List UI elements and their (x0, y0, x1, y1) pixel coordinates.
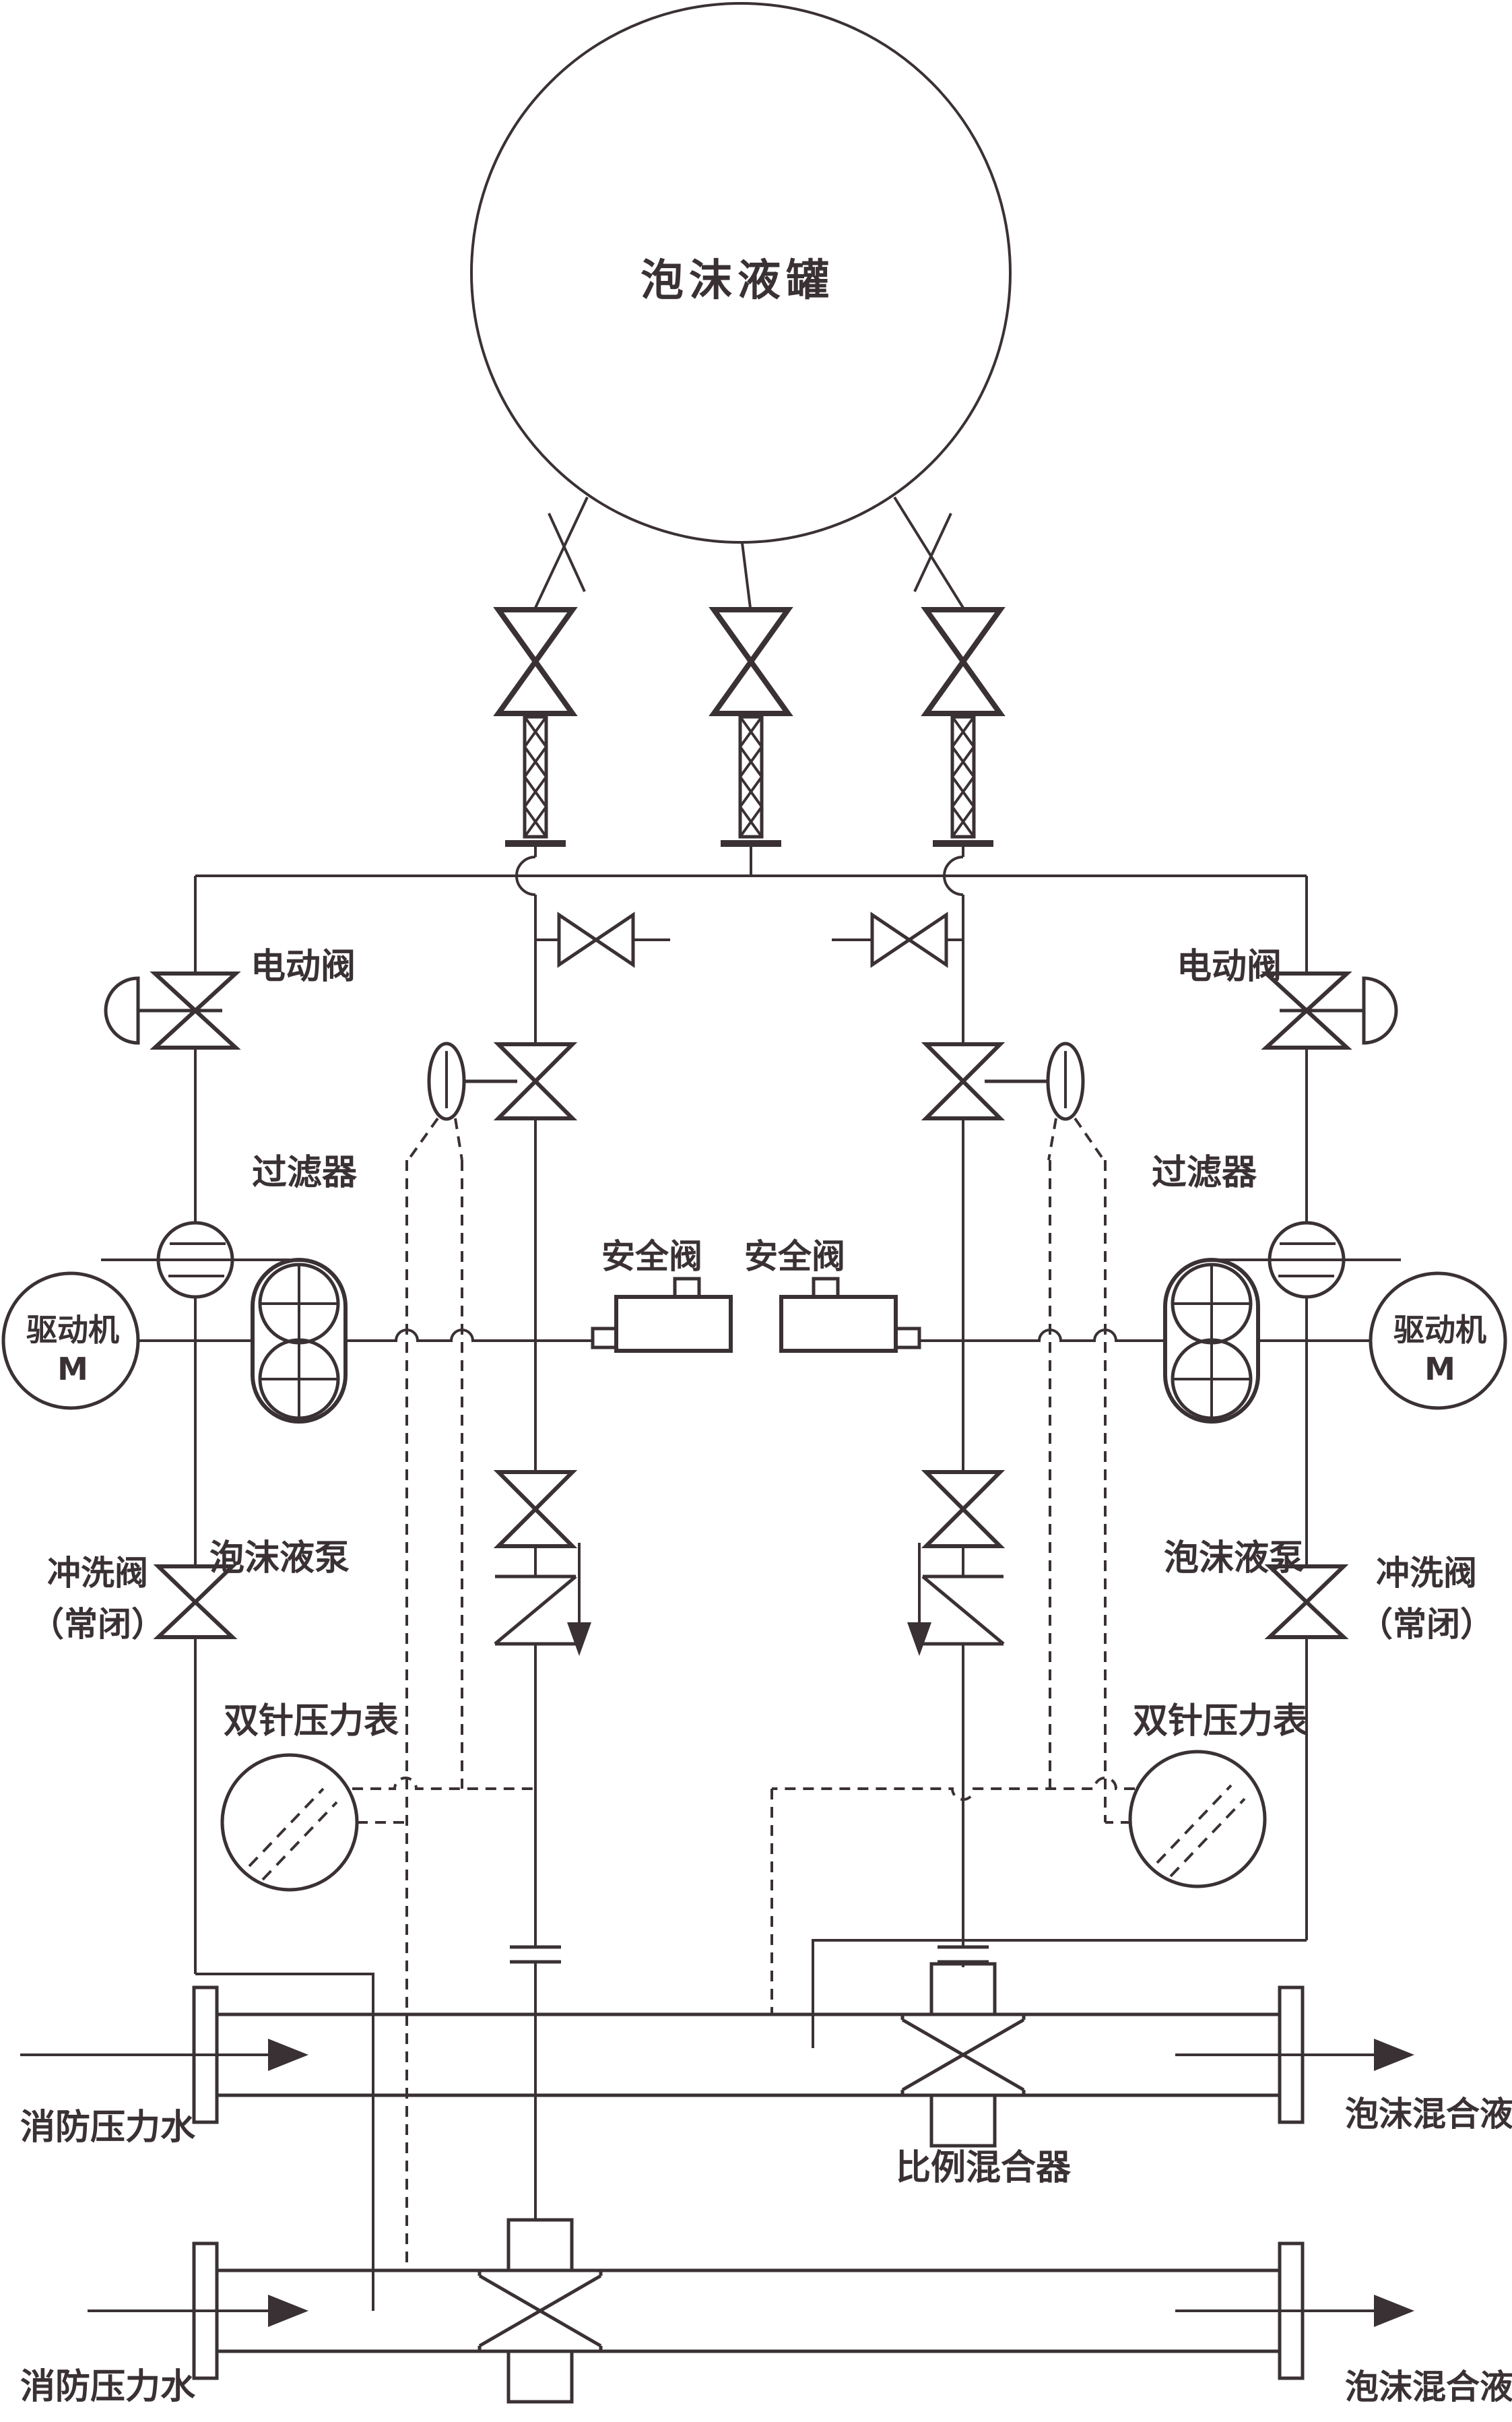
valve-triangle (596, 915, 633, 965)
motor-actuator-icon (1364, 978, 1396, 1043)
flush-valve-label-2: （常闭） (1359, 1605, 1494, 1644)
valve-triangle (498, 1081, 572, 1118)
valve-triangle (926, 610, 1000, 662)
flush-valve-label-2: （常闭） (30, 1605, 165, 1644)
flush-drain-elbow (195, 1974, 373, 2311)
tank-outlet-valve-right (926, 610, 1000, 857)
isolation-valve-left (498, 1472, 572, 1546)
valve-triangle (926, 1509, 1000, 1546)
electric-valve-label: 电动阀 (1177, 947, 1282, 987)
safety-valve-vent (814, 1279, 838, 1297)
valve-triangle (559, 915, 596, 965)
valve-triangle (498, 1509, 572, 1546)
gauge-label: 双针压力表 (224, 1701, 399, 1742)
safety-valve-right: 安全阀 (744, 1237, 919, 1351)
tank-label: 泡沫液罐 (640, 256, 834, 306)
safety-valve-left: 安全阀 (593, 1237, 731, 1351)
right-outer-line (813, 876, 1307, 2048)
electric-valve-right: 电动阀 (1177, 947, 1396, 1048)
outlet-arrow-head (1374, 2039, 1414, 2071)
outlet-label: 泡沫混合液 (1345, 2095, 1512, 2134)
hand-valve-left (408, 1044, 572, 1160)
foam-pump-label: 泡沫液泵 (1164, 1538, 1304, 1579)
motor-label-m: M (57, 1351, 88, 1387)
flex-joint (952, 717, 974, 837)
tank-outlet-lines (535, 497, 963, 608)
drive-motor-left: 驱动机 M (3, 1273, 138, 1408)
diagram-canvas: 泡沫液罐 (0, 0, 1512, 2422)
valve-triangle (498, 662, 572, 713)
valve-triangle (926, 1472, 1000, 1509)
motor-label-m: M (1424, 1351, 1455, 1387)
linkage-dashed (1075, 1118, 1104, 1160)
check-valve-flap (923, 1576, 1004, 1644)
filter-right: 过滤器 (1152, 1153, 1401, 1297)
check-valve-flap (495, 1576, 576, 1644)
arrow-head (907, 1622, 931, 1656)
safety-valve-vent (675, 1279, 699, 1297)
check-valve-right (923, 1576, 1004, 1644)
valve-triangle (926, 662, 1000, 713)
flow-arrow-down-right (907, 1543, 931, 1656)
valve-triangle (158, 1602, 232, 1637)
mixer-label: 比例混合器 (896, 2148, 1072, 2188)
hand-valve-right (926, 1044, 1104, 1160)
flex-hatch (525, 717, 546, 837)
valve-triangle (1266, 1011, 1347, 1048)
valve-triangle (498, 1472, 572, 1509)
outlet-line-left (535, 497, 587, 608)
mixer-bottom-port (931, 2095, 995, 2146)
filter-label: 过滤器 (1152, 1153, 1257, 1193)
mixer-bottom-port (508, 2351, 572, 2402)
foam-liquid-tank: 泡沫液罐 (471, 3, 1010, 542)
valve-triangle (714, 610, 788, 662)
flush-valve-label-1: 冲洗阀 (47, 1554, 148, 1593)
pressure-gauge-right: 双针压力表 (772, 1701, 1308, 1886)
flow-arrow-down-left (567, 1543, 591, 1656)
linkage-dashed (1049, 1118, 1056, 1160)
flush-valve-left: 冲洗阀 （常闭） (30, 1554, 232, 1644)
motor-label: 驱动机 (1393, 1312, 1486, 1348)
pressure-gauge-left: 双针压力表 (222, 1701, 535, 1890)
electric-valve-label: 电动阀 (251, 947, 356, 987)
tank-outlet-valve-left (498, 610, 572, 857)
mixer-top-port (931, 1964, 995, 2014)
inlet-label: 消防压力水 (20, 2367, 196, 2407)
flex-joint (525, 717, 546, 837)
valve-triangle (155, 974, 236, 1011)
crossover-branch (535, 915, 963, 965)
safety-valve-body (781, 1297, 896, 1351)
flush-drain-elbow (813, 1940, 1307, 2048)
valve-triangle (155, 1011, 236, 1048)
outlet-line-right (894, 497, 963, 608)
safety-valve-label: 安全阀 (744, 1237, 845, 1276)
water-pipe-2: 消防压力水 泡沫混合液 (20, 2243, 1512, 2407)
motor-label: 驱动机 (26, 1312, 119, 1348)
inlet-arrow-head (268, 2295, 308, 2327)
outlet-line-left-cross (549, 513, 585, 592)
arrow-head (567, 1622, 591, 1656)
electric-valve-left: 电动阀 (106, 947, 356, 1048)
inner-left-line (510, 895, 561, 2220)
gauge-needle (1171, 1799, 1245, 1876)
filter-label: 过滤器 (252, 1153, 358, 1193)
inlet-arrow-head (268, 2039, 308, 2071)
outlet-line-center (742, 543, 750, 608)
valve-triangle (872, 915, 909, 965)
isolation-valve-right (926, 1472, 1000, 1546)
outlet-label: 泡沫混合液 (1345, 2367, 1512, 2407)
proportioner-mixer-1 (902, 1964, 1024, 2146)
check-valve-left (495, 1576, 576, 1644)
gauge-label: 双针压力表 (1133, 1701, 1308, 1742)
flex-hatch (952, 717, 974, 837)
gauge-sensing-link-1 (352, 1778, 535, 1789)
linkage-dashed (408, 1118, 438, 1160)
water-pipe-1: 消防压力水 泡沫混合液 (20, 1987, 1512, 2148)
foam-pump-label: 泡沫液泵 (209, 1538, 350, 1579)
valve-triangle (714, 662, 788, 713)
flex-joint (740, 717, 762, 837)
drive-motor-right: 驱动机 M (1371, 1273, 1505, 1408)
gauge-needle (263, 1802, 337, 1880)
linkage-dashed (455, 1118, 462, 1160)
valve-triangle (926, 1044, 1000, 1081)
foam-pump-left: 泡沫液泵 (209, 1260, 350, 1579)
outlet-arrow-head (1374, 2295, 1414, 2327)
valve-triangle (909, 915, 946, 965)
gauge-dial (1130, 1752, 1265, 1886)
valve-triangle (1270, 1602, 1344, 1637)
safety-valve-body (616, 1297, 731, 1351)
filter-left: 过滤器 (101, 1153, 358, 1297)
pid-diagram-foam-proportioning-system: 泡沫液罐 (0, 0, 1512, 2422)
safety-valve-label: 安全阀 (601, 1237, 702, 1276)
safety-valve-port (896, 1329, 919, 1347)
proportioner-mixer-2 (480, 2220, 601, 2402)
safety-valve-port (593, 1329, 616, 1347)
inlet-label: 消防压力水 (20, 2107, 196, 2148)
pump-discharge-line-left (346, 1330, 593, 1341)
valve-triangle (498, 610, 572, 662)
flush-valve-label-1: 冲洗阀 (1376, 1554, 1477, 1593)
valve-triangle (498, 1044, 572, 1081)
flex-hatch (740, 717, 762, 837)
gauge-dial (222, 1755, 357, 1890)
mixer-top-port (508, 2220, 572, 2270)
pump-discharge-line-right (919, 1330, 1165, 1341)
valve-triangle (926, 1081, 1000, 1118)
inner-right-line (938, 895, 989, 1967)
foam-pump-right: 泡沫液泵 (1164, 1260, 1304, 1579)
tank-outlet-valve-center (714, 610, 788, 876)
motor-actuator-icon (106, 978, 138, 1043)
gauge-sensing-link-1 (772, 1778, 1135, 1799)
